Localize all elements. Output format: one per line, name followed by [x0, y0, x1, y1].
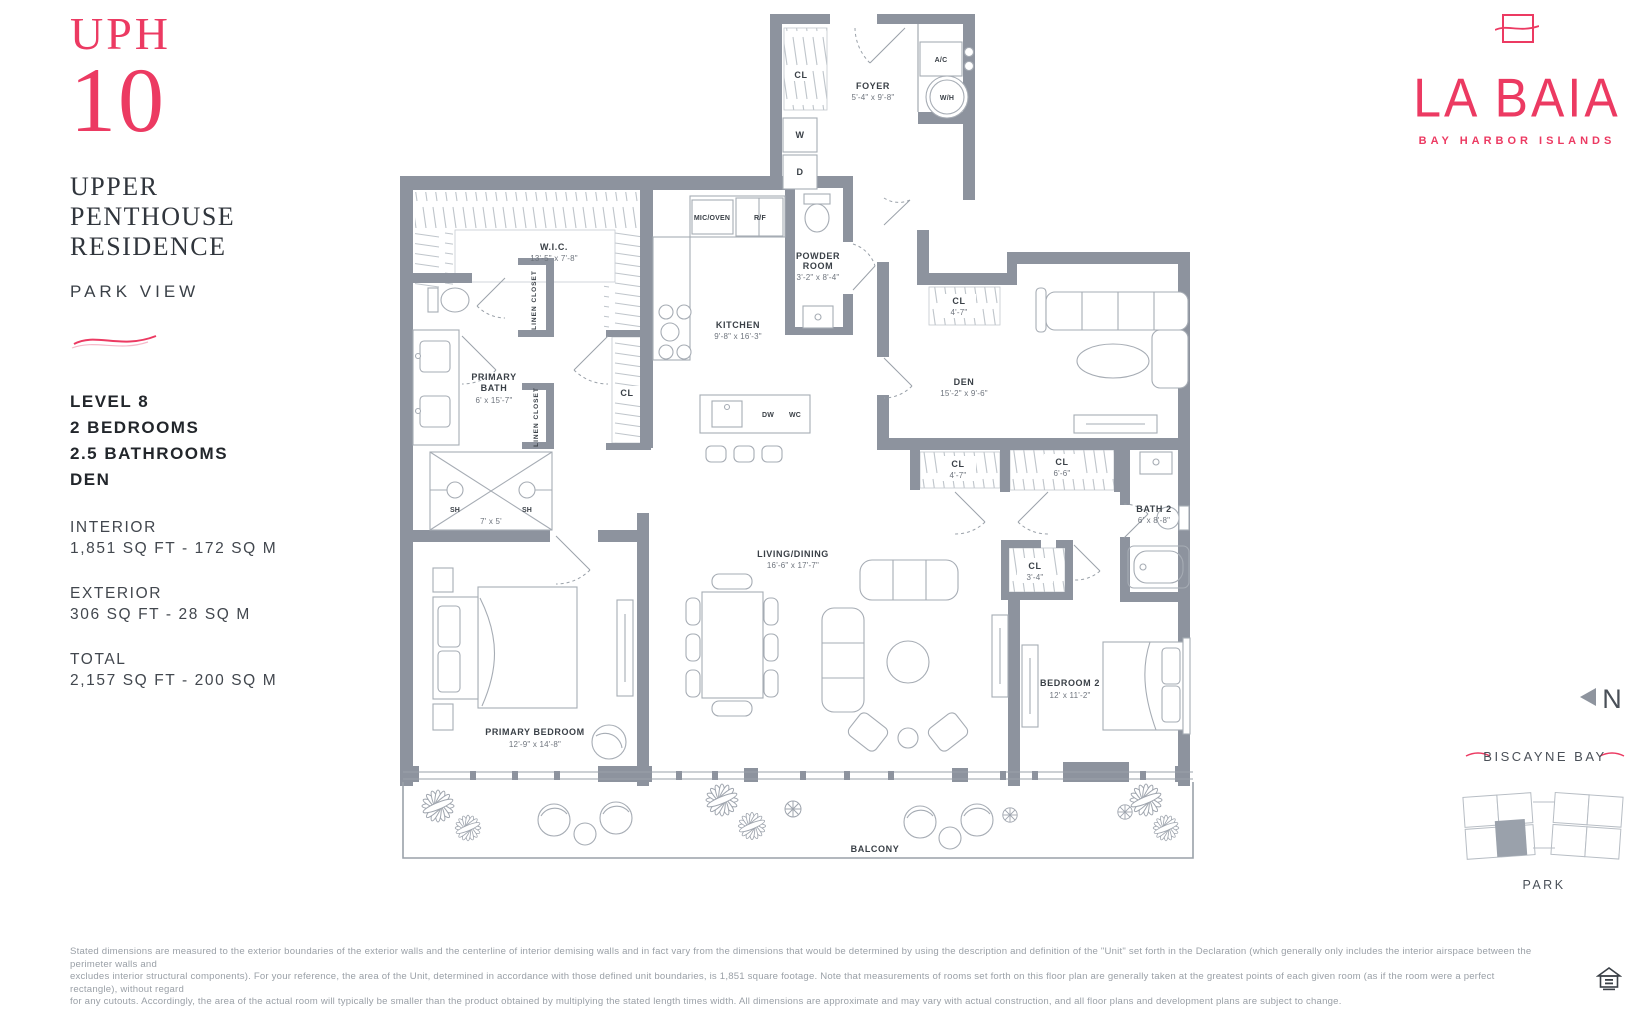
primary-bath-dims: 6' x 15'-7": [475, 396, 512, 405]
primary-bath-label: PRIMARY: [471, 372, 516, 382]
exterior-label: EXTERIOR: [70, 583, 370, 604]
bedroom2-label: BEDROOM 2: [1040, 678, 1100, 688]
wine-cooler-label: WC: [789, 412, 801, 419]
cl-foyer-label: CL: [794, 70, 807, 80]
equal-housing-icon: [1596, 966, 1622, 992]
brand-wordmark: LA BAIA: [1396, 67, 1636, 130]
view-label: PARK VIEW: [70, 282, 370, 302]
residence-line2: PENTHOUSE: [70, 202, 370, 232]
floor-plan: CL W D A/C W/H FOYER 5'-4" x 9'-8" MIC/O…: [395, 5, 1205, 865]
shower-head1-label: SH: [450, 507, 460, 514]
bath2-label: BATH 2: [1136, 504, 1171, 514]
disclaimer-line1: Stated dimensions are measured to the ex…: [70, 946, 1540, 971]
cl-row2-label: CL: [1055, 457, 1068, 467]
interior-area: INTERIOR 1,851 SQ FT - 172 SQ M: [70, 517, 370, 559]
bedroom2-dims: 12' x 11'-2": [1049, 691, 1090, 700]
spec-bathrooms: 2.5 BATHROOMS: [70, 441, 370, 467]
spec-level: LEVEL 8: [70, 389, 370, 415]
unit-number: 10: [70, 58, 370, 142]
cl-small-dims: 3'-4": [1027, 573, 1044, 582]
fridge-label: R/F: [754, 215, 766, 222]
linen-closet2-label: LINEN CLOSET: [533, 387, 540, 447]
cl-den-label: CL: [952, 296, 965, 306]
cl-den-dims: 4'-7": [951, 308, 968, 317]
disclaimer-line3: for any cutouts. Accordingly, the area o…: [70, 996, 1540, 1009]
site-buildings: [1463, 792, 1623, 859]
living-dining-label: LIVING/DINING: [757, 549, 829, 559]
brand-mark-icon: [1495, 10, 1539, 50]
linen-closet-label: LINEN CLOSET: [531, 270, 538, 330]
furniture: [413, 24, 1190, 849]
powder-room-dims: 3'-2" x 8'-4": [797, 273, 840, 282]
kitchen-dims: 9'-8" x 16'-3": [714, 332, 762, 341]
den-label: DEN: [954, 377, 975, 387]
living-dining-dims: 16'-6" x 17'-7": [767, 561, 819, 570]
residence-line3: RESIDENCE: [70, 232, 370, 262]
dryer-label: D: [796, 167, 803, 177]
cl-row2-dims: 6'-6": [1054, 469, 1071, 478]
bath2-dims: 6' x 8'-8": [1138, 516, 1170, 525]
primary-bedroom-label: PRIMARY BEDROOM: [485, 727, 585, 737]
balcony-plants: [422, 784, 1179, 841]
water-heater-label: W/H: [940, 95, 954, 102]
washer-label: W: [795, 130, 804, 140]
north-arrow-icon: [1580, 688, 1596, 706]
unit-specs: LEVEL 8 2 BEDROOMS 2.5 BATHROOMS DEN: [70, 389, 370, 493]
wic-label: W.I.C.: [540, 242, 568, 252]
wic-dims: 13'-5" x 7'-8": [530, 254, 578, 263]
disclaimer: Stated dimensions are measured to the ex…: [70, 946, 1540, 1009]
park-label: PARK: [1522, 878, 1565, 892]
total-label: TOTAL: [70, 649, 370, 670]
interior-value: 1,851 SQ FT - 172 SQ M: [70, 538, 370, 559]
powder-room-label: POWDER: [796, 251, 840, 261]
powder-room-label2: ROOM: [803, 261, 833, 271]
residence-title: UPPER PENTHOUSE RESIDENCE: [70, 172, 370, 262]
ac-label: A/C: [935, 57, 948, 64]
residence-line1: UPPER: [70, 172, 370, 202]
cl-row1-dims: 4'-7": [950, 471, 967, 480]
foyer-label: FOYER: [856, 81, 890, 91]
dishwasher-label: DW: [762, 412, 774, 419]
interior-label: INTERIOR: [70, 517, 370, 538]
north-label: N: [1602, 684, 1622, 714]
brand-tagline: BAY HARBOR ISLANDS: [1398, 135, 1636, 147]
balcony-label: BALCONY: [851, 844, 900, 854]
exterior-area: EXTERIOR 306 SQ FT - 28 SQ M: [70, 583, 370, 625]
shower-dims: 7' x 5': [480, 517, 502, 526]
primary-bedroom-dims: 12'-9" x 14'-8": [509, 740, 561, 749]
cl-small-label: CL: [1028, 561, 1041, 571]
total-value: 2,157 SQ FT - 200 SQ M: [70, 670, 370, 691]
spec-bedrooms: 2 BEDROOMS: [70, 415, 370, 441]
spec-den: DEN: [70, 467, 370, 493]
sidebar: UPH 10 UPPER PENTHOUSE RESIDENCE PARK VI…: [70, 10, 370, 691]
primary-bath-label2: BATH: [481, 383, 508, 393]
kitchen-label: KITCHEN: [716, 320, 760, 330]
total-area: TOTAL 2,157 SQ FT - 200 SQ M: [70, 649, 370, 691]
wave-divider-icon: [70, 328, 162, 354]
cl-row1-label: CL: [951, 459, 964, 469]
mic-oven-label: MIC/OVEN: [694, 215, 730, 222]
shower-head2-label: SH: [522, 507, 532, 514]
water-label: BISCAYNE BAY: [1483, 749, 1606, 764]
key-plan: N BISCAYNE BAY PARK: [1440, 658, 1636, 893]
disclaimer-line2: excludes interior structural components)…: [70, 971, 1540, 996]
exterior-value: 306 SQ FT - 28 SQ M: [70, 604, 370, 625]
foyer-dims: 5'-4" x 9'-8": [852, 93, 895, 102]
brand-logo: LA BAIA BAY HARBOR ISLANDS: [1398, 10, 1636, 147]
den-dims: 15'-2" x 9'-6": [940, 389, 988, 398]
cl-hall-label: CL: [620, 388, 633, 398]
highlighted-unit: [1495, 819, 1527, 857]
